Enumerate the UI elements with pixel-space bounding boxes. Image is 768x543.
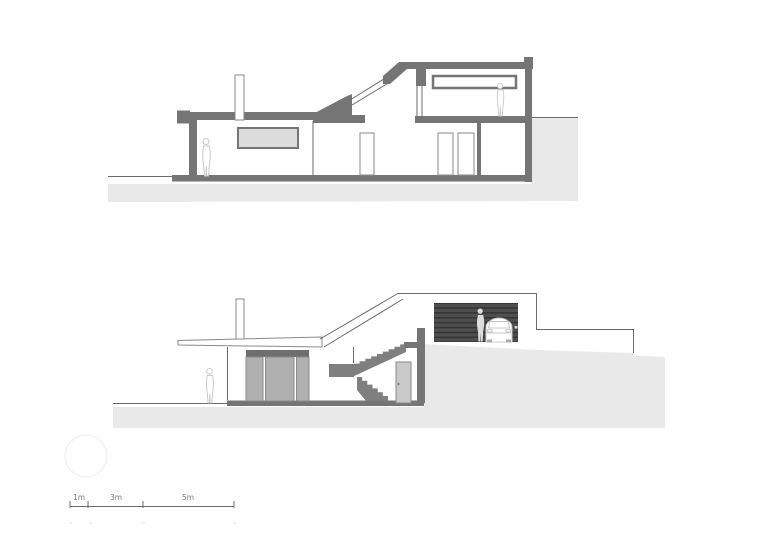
car-mirror-right	[515, 326, 518, 329]
car-wheel-left	[487, 340, 492, 343]
watermark-circle	[65, 435, 107, 477]
scale-label-5m: 5m	[182, 493, 194, 502]
person-figure-section-lower	[203, 139, 211, 177]
glazed-door-panel-middle	[266, 357, 295, 401]
clerestory-window	[238, 128, 298, 148]
car-mirror-left	[481, 326, 484, 329]
section-door-left	[360, 133, 374, 175]
faint-mark-3	[142, 522, 145, 524]
architectural-drawing-sheet: 1m 3m 5m	[0, 0, 768, 543]
retaining-wall	[417, 328, 425, 403]
stair-door	[396, 362, 411, 403]
stair-door-handle	[398, 383, 400, 385]
drawing-svg: 1m 3m 5m	[0, 0, 768, 543]
elevation-chimney	[236, 299, 244, 339]
upper-strip-window	[433, 76, 516, 88]
watermark	[65, 435, 236, 524]
section-interior-wall	[477, 123, 481, 175]
glazed-door-header	[246, 350, 309, 357]
chimney	[235, 75, 244, 120]
faint-mark-4	[233, 522, 236, 524]
stair-lower-flight	[357, 377, 388, 401]
elevation-drawing	[113, 293, 665, 428]
section-earth-fill	[108, 118, 578, 202]
section-upper-wall-block	[416, 67, 426, 86]
skylight-glazing-line-inner	[352, 82, 390, 105]
car-wheel-right	[506, 340, 511, 343]
scale-label-1m: 1m	[73, 493, 85, 502]
glazed-door-panel-left	[246, 357, 263, 401]
section-door-right	[458, 133, 474, 175]
elevation-slope-inner	[324, 299, 403, 347]
section-roof-wedge	[313, 94, 352, 123]
faint-mark-1	[69, 522, 72, 524]
faint-mark-2	[89, 522, 92, 524]
scale-label-3m: 3m	[110, 493, 122, 502]
cross-section-drawing	[108, 57, 578, 202]
section-door-mid	[438, 133, 453, 175]
section-roof-edge-lip	[177, 111, 190, 124]
section-floor-slab	[172, 175, 532, 182]
elevation-roof-slab	[178, 337, 322, 347]
skylight-glazing-line-outer	[350, 77, 387, 100]
section-upper-floor-slab	[415, 116, 532, 123]
glazed-door-panel-right	[297, 357, 310, 401]
section-left-wall	[189, 118, 197, 176]
person-figure-elevation	[206, 368, 213, 403]
elevation-slope-outer	[320, 294, 397, 339]
scale-bar: 1m 3m 5m	[70, 493, 234, 508]
